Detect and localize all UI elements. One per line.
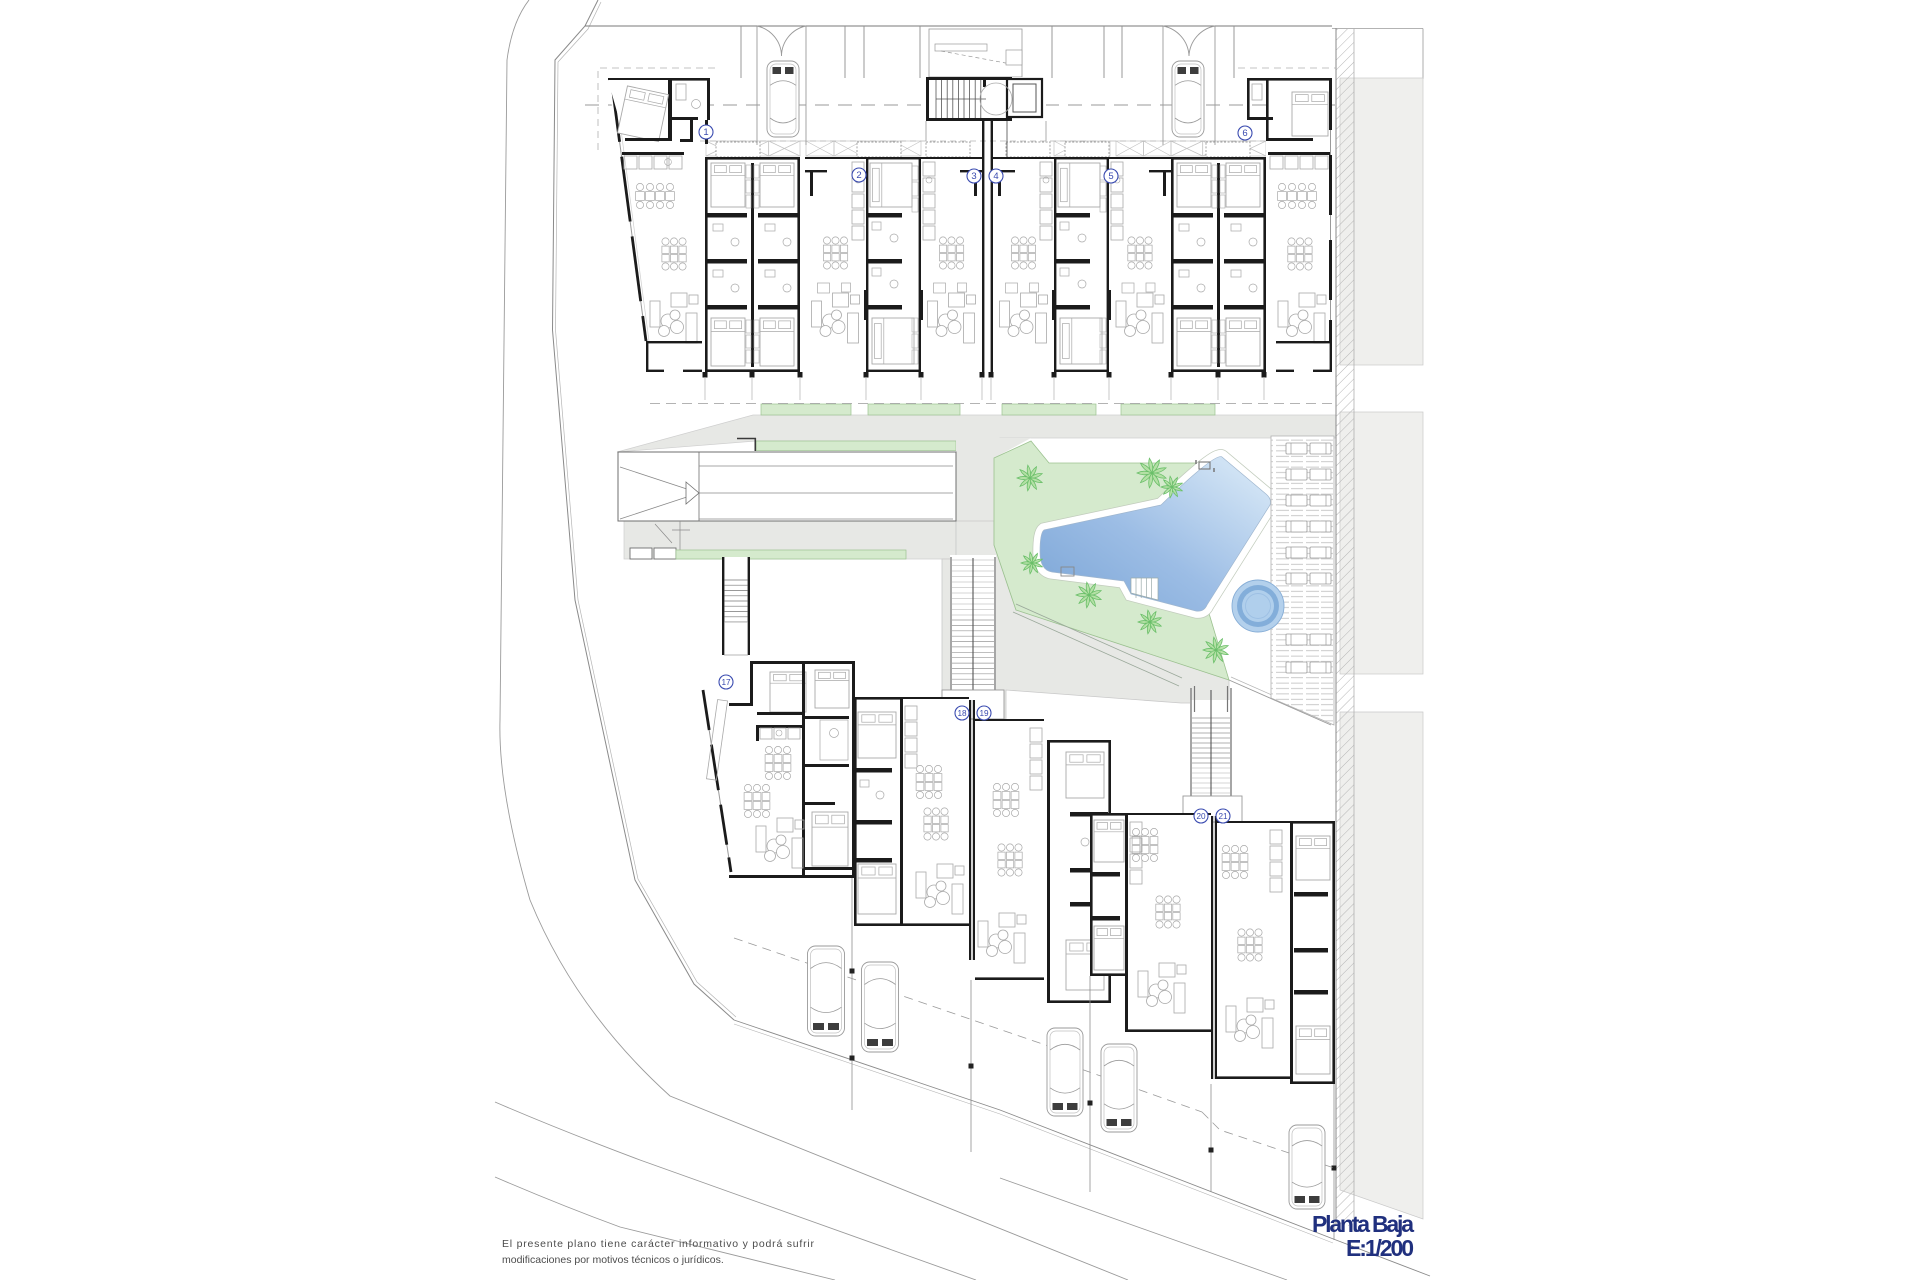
svg-text:20: 20 xyxy=(1196,812,1206,821)
svg-text:El presente plano tiene caráct: El presente plano tiene carácter informa… xyxy=(502,1238,815,1250)
svg-text:E:1/200: E:1/200 xyxy=(1346,1235,1414,1261)
svg-text:modificaciones por motivos téc: modificaciones por motivos técnicos o ju… xyxy=(502,1254,724,1266)
svg-text:17: 17 xyxy=(721,678,731,687)
svg-text:5: 5 xyxy=(1108,171,1113,182)
svg-text:3: 3 xyxy=(971,171,976,182)
svg-text:19: 19 xyxy=(979,709,989,718)
svg-text:4: 4 xyxy=(993,171,998,182)
svg-text:Planta Baja: Planta Baja xyxy=(1312,1211,1414,1237)
svg-text:6: 6 xyxy=(1242,128,1247,139)
svg-text:2: 2 xyxy=(856,170,861,181)
svg-text:18: 18 xyxy=(957,709,967,718)
svg-text:21: 21 xyxy=(1218,812,1228,821)
svg-text:1: 1 xyxy=(703,127,708,138)
